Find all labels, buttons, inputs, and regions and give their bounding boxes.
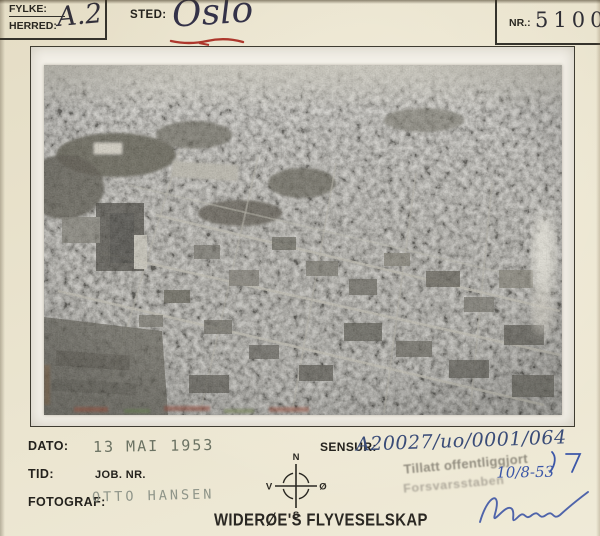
company-name: WIDERØE'S FLYVESELSKAP	[214, 511, 428, 531]
sted-handwritten-value: Oslo	[171, 0, 255, 36]
dato-stamped-value: 13 MAI 1953	[93, 436, 215, 456]
aerial-photo	[44, 65, 562, 415]
tid-label: TID:	[28, 467, 54, 481]
nr-label: NR.:	[509, 17, 531, 29]
aerial-photo-image	[44, 65, 562, 415]
fylke-herred-handwritten-value: A.2	[56, 0, 104, 33]
compass-north-label: N	[293, 452, 300, 463]
compass-east-label: Ø	[319, 482, 326, 493]
aerial-photo-archive-card: FYLKE: HERRED: A.2 STED: Oslo NR.: 51000	[0, 0, 600, 536]
sted-label: STED:	[130, 9, 167, 21]
nr-stamped-value: 51000	[535, 8, 600, 32]
dato-label: DATO:	[28, 439, 68, 453]
job-nr-label: JOB. NR.	[95, 469, 146, 481]
fotograf-stamped-value: OTTO HANSEN	[92, 486, 215, 505]
compass-west-label: V	[266, 482, 273, 493]
photo-frame	[30, 46, 575, 427]
nr-box: NR.: 51000	[495, 0, 600, 45]
fylke-herred-box: FYLKE: HERRED: A.2	[0, 0, 107, 40]
signature	[474, 486, 594, 534]
blue-pen-marks	[540, 448, 586, 478]
